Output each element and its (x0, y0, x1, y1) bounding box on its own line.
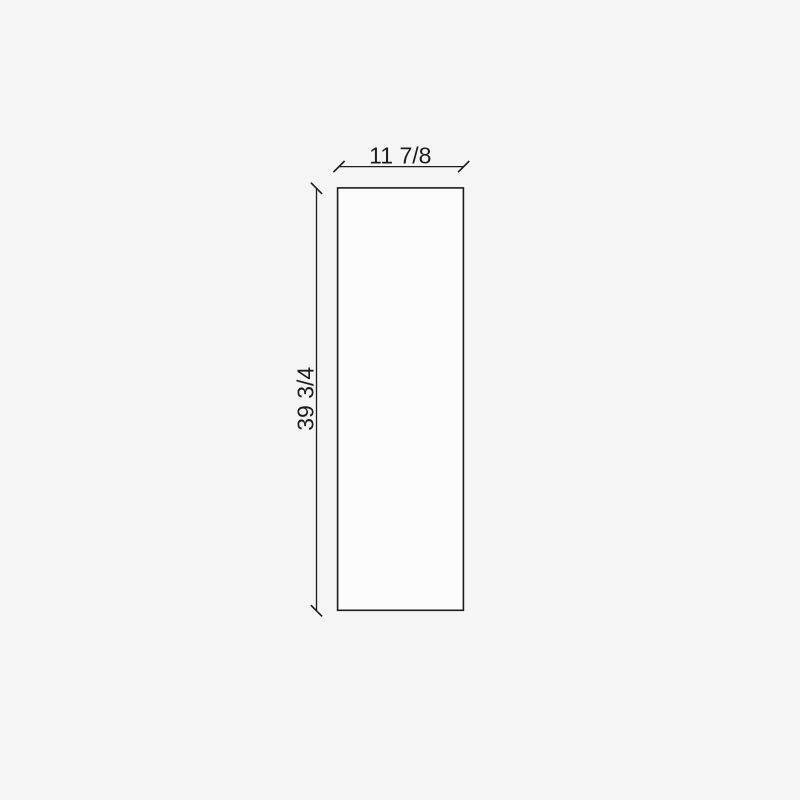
svg-text:11 7/8: 11 7/8 (369, 143, 431, 169)
svg-text:39 3/4: 39 3/4 (293, 367, 319, 431)
